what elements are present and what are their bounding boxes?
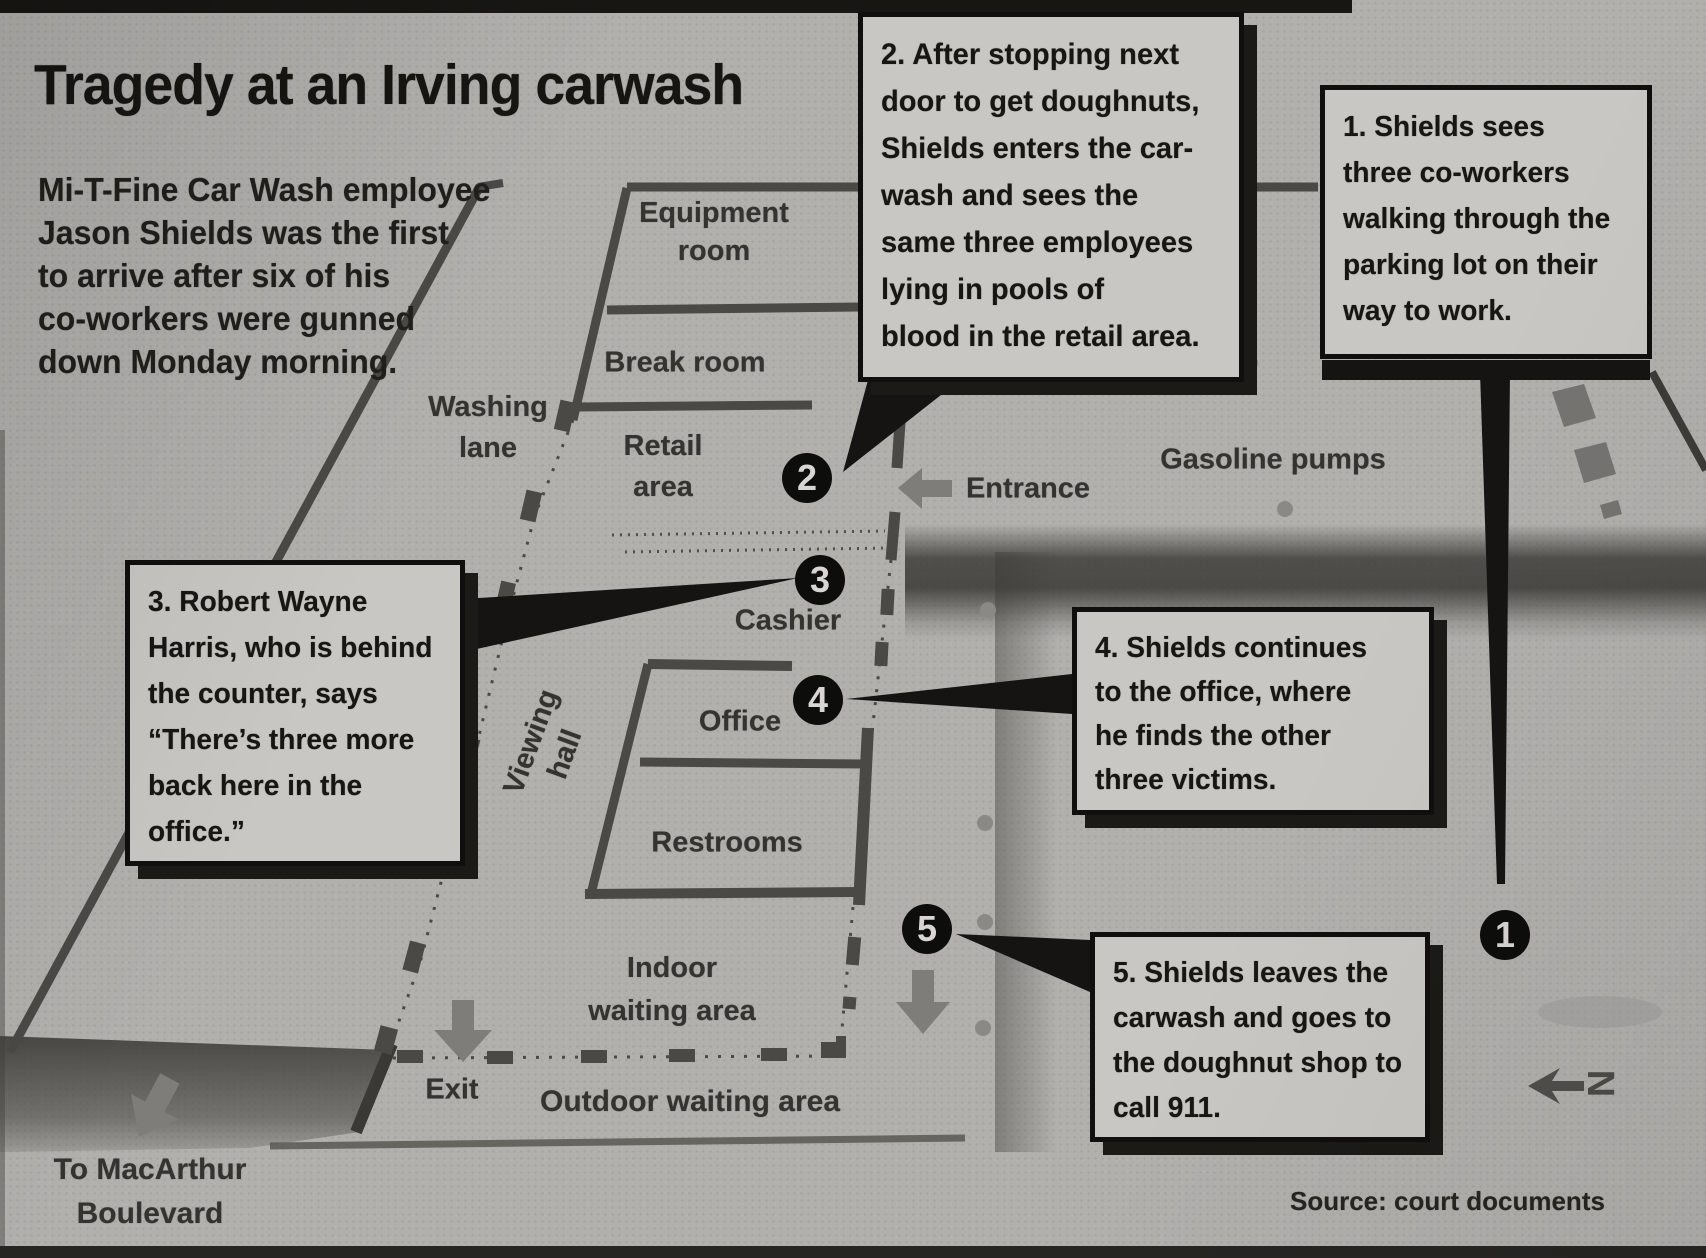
source-credit: Source: court documents	[1290, 1186, 1605, 1217]
label-to-macarthur-boulevard: To MacArthur Boulevard	[54, 1148, 247, 1236]
label-retail-area: Retail area	[624, 426, 703, 508]
map-marker-3: 3	[795, 555, 845, 605]
page-title: Tragedy at an Irving carwash	[34, 52, 743, 118]
callout-step-4: 4. Shields continues to the office, wher…	[1072, 607, 1434, 815]
label-entrance: Entrance	[966, 473, 1090, 506]
intro-line: down Monday morning.	[38, 340, 490, 383]
label-washing-lane: Washing lane	[428, 387, 548, 469]
entrance-arrow-icon	[898, 468, 952, 509]
map-marker-2: 2	[782, 453, 832, 503]
street-lane-dashes	[1552, 384, 1622, 519]
exit-arrow-icon	[434, 1000, 492, 1062]
compass-north-label: N	[1578, 1070, 1621, 1097]
paper-smudge	[1538, 996, 1662, 1028]
intro-text: Mi-T-Fine Car Wash employee Jason Shield…	[38, 168, 490, 383]
callout-step-1: 1. Shields sees three co-workers walking…	[1320, 85, 1652, 359]
map-marker-1: 1	[1480, 910, 1530, 960]
callout-step-2: 2. After stopping next door to get dough…	[858, 12, 1244, 382]
counter-dotted-lines	[612, 531, 888, 552]
compass-arrow-icon	[1528, 1068, 1584, 1104]
intro-line: co-workers were gunned	[38, 297, 490, 340]
callout-step-3: 3. Robert Wayne Harris, who is behind th…	[125, 560, 465, 866]
infographic-page: Tragedy at an Irving carwash Mi-T-Fine C…	[0, 0, 1706, 1258]
callout-step-5: 5. Shields leaves the carwash and goes t…	[1090, 932, 1430, 1142]
map-marker-5: 5	[902, 904, 952, 954]
east-driveway	[995, 552, 1057, 1152]
bottom-edge-bar	[0, 1246, 1706, 1258]
label-break-room: Break room	[604, 347, 765, 380]
label-cashier: Cashier	[735, 605, 841, 638]
street-edge-diagonal	[1652, 372, 1706, 470]
label-gasoline-pumps: Gasoline pumps	[1160, 444, 1386, 477]
intro-line: Jason Shields was the first	[38, 211, 490, 254]
label-outdoor-waiting-area: Outdoor waiting area	[540, 1085, 840, 1119]
label-indoor-waiting-area: Indoor waiting area	[588, 947, 756, 1033]
label-office: Office	[699, 706, 781, 739]
left-road	[0, 1036, 388, 1152]
intro-line: Mi-T-Fine Car Wash employee	[38, 168, 490, 211]
label-equipment-room: Equipment room	[639, 194, 789, 270]
map-marker-4: 4	[793, 675, 843, 725]
intro-line: to arrive after six of his	[38, 254, 490, 297]
shop-exit-arrow-icon	[896, 970, 950, 1034]
label-restrooms: Restrooms	[651, 827, 803, 860]
outdoor-area-bottom-edge	[270, 1138, 965, 1146]
label-exit: Exit	[425, 1074, 478, 1107]
